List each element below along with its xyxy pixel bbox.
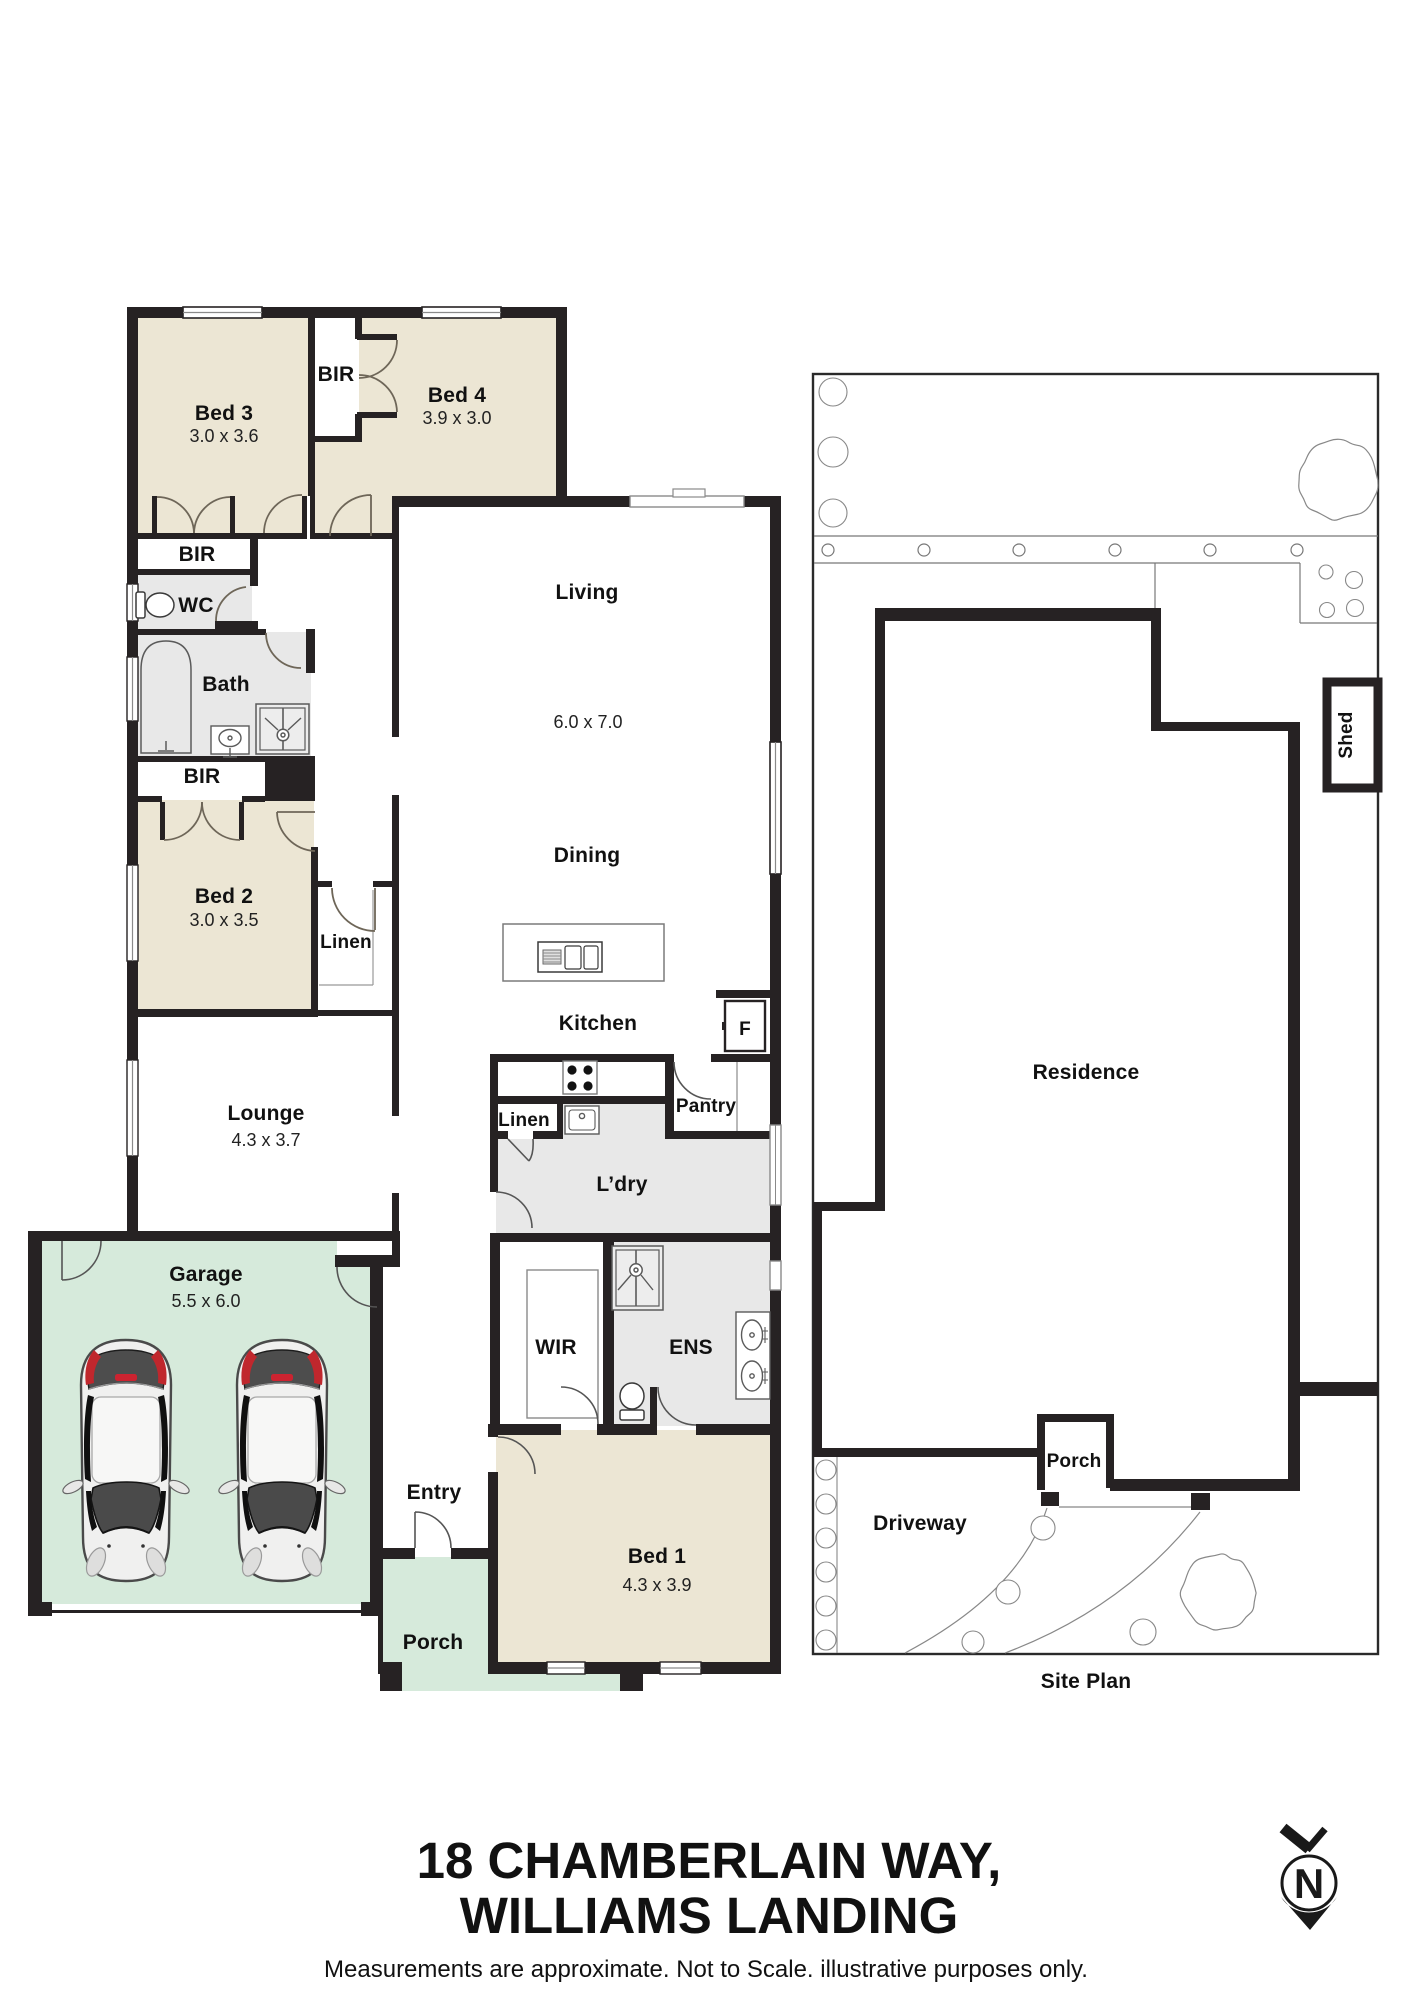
svg-text:ENS: ENS: [669, 1336, 713, 1359]
svg-text:Living: Living: [555, 581, 618, 604]
svg-text:Bath: Bath: [202, 673, 249, 696]
svg-text:Shed: Shed: [1336, 711, 1357, 758]
svg-text:Linen: Linen: [320, 932, 372, 953]
svg-text:3.9 x 3.0: 3.9 x 3.0: [422, 408, 491, 428]
svg-text:4.3 x 3.7: 4.3 x 3.7: [231, 1130, 300, 1150]
svg-text:Dining: Dining: [554, 844, 621, 867]
svg-text:Porch: Porch: [403, 1631, 464, 1654]
svg-text:F: F: [739, 1019, 751, 1040]
svg-text:Bed 1: Bed 1: [628, 1545, 686, 1568]
svg-text:WIR: WIR: [535, 1336, 576, 1359]
svg-text:Bed 4: Bed 4: [428, 384, 486, 407]
svg-text:BIR: BIR: [179, 543, 216, 566]
svg-text:5.5 x 6.0: 5.5 x 6.0: [171, 1291, 240, 1311]
svg-text:3.0 x 3.6: 3.0 x 3.6: [189, 426, 258, 446]
svg-text:Residence: Residence: [1033, 1061, 1140, 1084]
svg-text:BIR: BIR: [318, 363, 355, 386]
svg-text:3.0 x 3.5: 3.0 x 3.5: [189, 910, 258, 930]
svg-text:L’dry: L’dry: [596, 1173, 647, 1196]
svg-text:N: N: [1294, 1860, 1324, 1907]
svg-text:Garage: Garage: [169, 1263, 243, 1286]
svg-text:WC: WC: [178, 594, 213, 617]
svg-text:18 CHAMBERLAIN WAY,: 18 CHAMBERLAIN WAY,: [417, 1832, 1002, 1889]
svg-text:BIR: BIR: [184, 765, 221, 788]
svg-text:Porch: Porch: [1047, 1451, 1102, 1472]
svg-text:Kitchen: Kitchen: [559, 1012, 637, 1035]
svg-text:Site Plan: Site Plan: [1041, 1670, 1132, 1693]
svg-text:6.0 x 7.0: 6.0 x 7.0: [553, 712, 622, 732]
svg-text:Linen: Linen: [498, 1110, 550, 1131]
svg-text:Pantry: Pantry: [676, 1096, 737, 1117]
svg-text:WILLIAMS LANDING: WILLIAMS LANDING: [460, 1887, 959, 1944]
svg-text:Bed 3: Bed 3: [195, 402, 253, 425]
svg-text:4.3 x 3.9: 4.3 x 3.9: [622, 1575, 691, 1595]
svg-text:Lounge: Lounge: [227, 1102, 304, 1125]
svg-text:Entry: Entry: [407, 1481, 462, 1504]
svg-text:Driveway: Driveway: [873, 1512, 967, 1535]
svg-text:Bed 2: Bed 2: [195, 885, 253, 908]
svg-text:Measurements are approximate.: Measurements are approximate. Not to Sca…: [324, 1956, 1088, 1983]
